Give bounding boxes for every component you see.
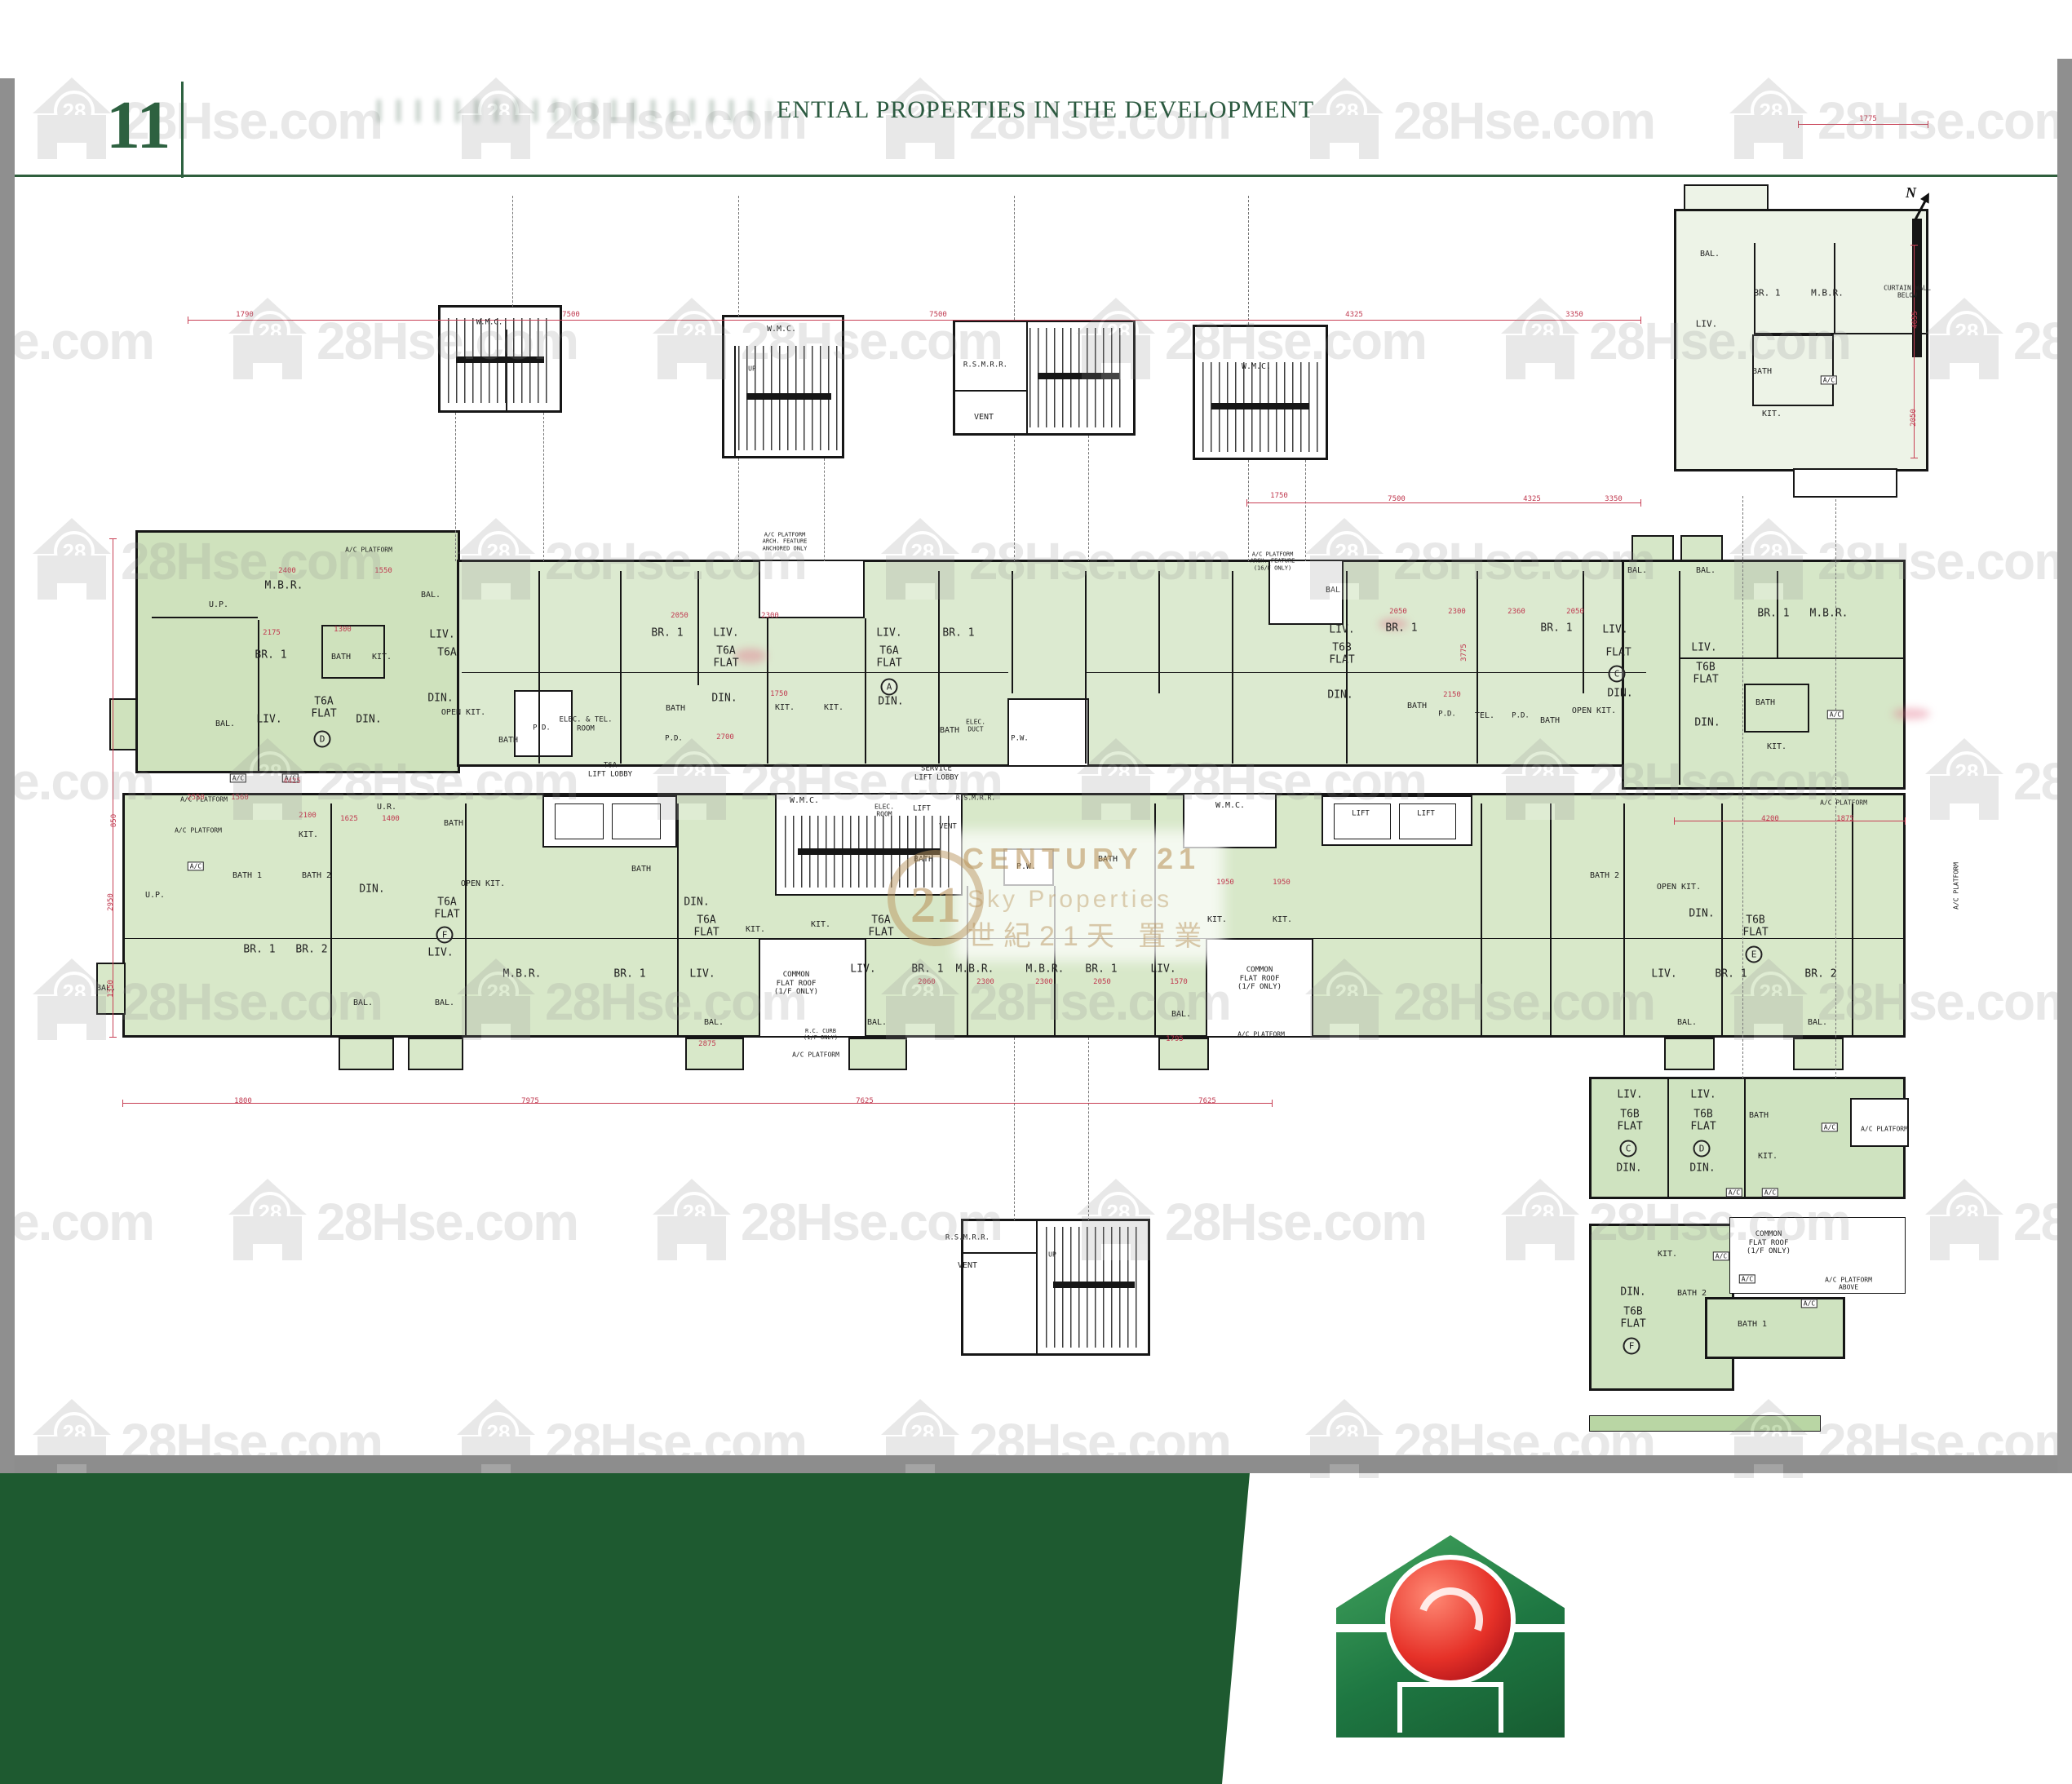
plan-label: A/C PLATFORM <box>175 826 222 834</box>
plan-label: BAL. <box>1808 1018 1827 1028</box>
dimension-label: 1300 <box>334 626 352 634</box>
dimension-label: 2550 <box>187 794 205 802</box>
dimension-label: 2950 <box>107 893 115 911</box>
plan-label: BR. 1 <box>1753 289 1780 299</box>
plan-label: BR. 2 <box>295 943 327 955</box>
plan-label: ELEC. & TEL. ROOM <box>559 715 612 733</box>
plan-label: R.C. CURB (1/F ONLY) <box>804 1028 838 1042</box>
dimension-label: 3775 <box>1460 644 1468 662</box>
dimension-label: 2050 <box>671 612 688 620</box>
plan-label: T6A LIFT LOBBY <box>588 761 632 778</box>
plan-label: BR. 1 <box>1540 622 1572 634</box>
plan-label: KIT. <box>1207 915 1227 925</box>
plan-label: C <box>1620 1140 1637 1158</box>
dimension-label: 2050 <box>1910 409 1918 427</box>
dimension-label: 2875 <box>698 1040 716 1048</box>
dimension-label: 2300 <box>1448 608 1466 616</box>
plan-label: DIN. <box>1327 688 1353 701</box>
plan-label: KIT. <box>1273 915 1292 925</box>
plan-label: A/C PLATFORM ARCH. FEATURE ANCHORED ONLY <box>763 532 808 552</box>
dimension-label: 1795 <box>1166 1035 1184 1043</box>
plan-label: BR. 1 <box>911 963 943 975</box>
plan-label: BAL. <box>867 1018 887 1028</box>
plan-label: LIV. <box>876 626 901 639</box>
plan-label: T6A FLAT <box>434 896 459 922</box>
page-number: 11 <box>106 91 170 160</box>
plan-label: BAL. <box>353 998 373 1008</box>
plan-label: M.B.R. <box>1026 963 1065 975</box>
plan-label: T6A FLAT <box>868 914 893 940</box>
plan-label: BR. 1 <box>1385 622 1417 634</box>
plan-label: A/C PLATFORM <box>1861 1125 1908 1132</box>
plan-label: DIN. <box>359 883 384 895</box>
dimension-label: 1570 <box>1170 978 1188 986</box>
plan-label: LIV. <box>713 626 738 639</box>
plan-label: P.D. <box>1512 712 1530 721</box>
page: { "page": { "number": "11", "title": "EN… <box>0 0 2072 1784</box>
plan-label: DIN. <box>1607 687 1632 699</box>
plan-label: T6B FLAT <box>1690 1109 1716 1134</box>
plan-label: W.M.C. <box>1215 801 1245 811</box>
plan-label: LIV. <box>1696 320 1718 330</box>
plan-label: BR. 1 <box>942 626 974 639</box>
plan-label: F <box>1623 1338 1640 1355</box>
plan-label: OPEN KIT. <box>1572 706 1616 716</box>
plan-label: W.M.C. <box>476 319 503 328</box>
dimension-label: 4325 <box>1345 311 1363 319</box>
dimension-label: 850 <box>110 814 118 827</box>
plan-label: BR. 1 <box>1757 607 1789 619</box>
dimension-label: 4200 <box>1761 815 1779 823</box>
plan-label: R.S.M.R.R. <box>963 361 1007 370</box>
plan-label: LIV. <box>850 963 875 975</box>
brand-logo <box>1336 1535 1565 1738</box>
plan-label: A/C <box>188 861 204 870</box>
plan-label: BATH <box>498 736 518 746</box>
plan-label: BATH 1 <box>232 871 262 881</box>
logo-red-ball-icon <box>1385 1555 1516 1685</box>
title-smudge <box>377 100 770 122</box>
header-rule <box>15 175 2057 177</box>
dimension-label: 7975 <box>521 1097 539 1105</box>
dimension-label: 1350 <box>107 980 115 998</box>
dimension-label: 2300 <box>1035 978 1053 986</box>
plan-label: COMMON FLAT ROOF (1/F ONLY) <box>1747 1230 1791 1256</box>
plan-label: BATH <box>1540 716 1560 726</box>
plan-label: KIT. <box>746 925 765 935</box>
plan-label: UP <box>748 365 756 372</box>
plan-label: KIT. <box>775 703 795 713</box>
plan-label: BATH 2 <box>1677 1289 1707 1299</box>
plan-label: SERVICE LIFT LOBBY <box>914 764 959 781</box>
dimension-label: 2360 <box>1508 608 1525 616</box>
plan-label: OPEN KIT. <box>441 708 485 718</box>
dimension-label: 1775 <box>1859 115 1877 123</box>
plan-label: TEL. <box>1475 711 1494 721</box>
plan-label: LIV. <box>1691 641 1716 653</box>
plan-label: LIFT <box>913 805 931 814</box>
north-label: N <box>1906 184 1916 201</box>
dimension-label: 2400 <box>278 567 296 575</box>
plan-label: BATH <box>331 653 351 662</box>
plan-label: DIN. <box>1616 1162 1641 1174</box>
plan-label: D <box>1693 1140 1711 1158</box>
plan-label: DIN. <box>878 695 903 707</box>
plan-label: BR. 2 <box>1804 967 1836 980</box>
plan-label: DIN. <box>1689 907 1714 919</box>
dimension-label: 7625 <box>1198 1097 1216 1105</box>
page-right-border <box>2057 59 2072 1473</box>
plan-label: BATH <box>1755 698 1775 708</box>
plan-label: W.M.C. <box>790 796 819 806</box>
plan-label: BATH <box>666 704 685 714</box>
plan-label: LIV. <box>427 946 453 958</box>
plan-label: BATH <box>914 855 933 865</box>
plan-label: T6A FLAT <box>311 696 336 721</box>
plan-label: LIV. <box>689 967 715 980</box>
dimension-label: 2300 <box>761 612 779 620</box>
dimension-label: 4425 <box>283 777 301 786</box>
plan-label: BAL. <box>435 998 454 1008</box>
plan-label: P.D. <box>533 724 551 733</box>
plan-label: DIN. <box>711 692 737 704</box>
plan-label: BATH <box>1752 367 1772 377</box>
logo-swirl-icon <box>1407 1577 1494 1663</box>
plan-label: LIV. <box>1690 1088 1716 1100</box>
plan-label: T6A <box>437 646 456 658</box>
dimension-label: 1750 <box>1270 492 1288 500</box>
plan-label: BR. 1 <box>1085 963 1117 975</box>
plan-label: A/C <box>1801 1299 1817 1308</box>
plan-label: ELEC. ROOM <box>874 803 894 819</box>
plan-label: P.W. <box>1016 862 1036 872</box>
dimension-label: 2050 <box>1389 608 1407 616</box>
dimension-label: 4655 <box>1911 311 1919 329</box>
plan-label: BR. 1 <box>1715 967 1747 980</box>
plan-label: OPEN KIT. <box>1657 883 1701 892</box>
plan-label: A/C <box>1739 1274 1755 1283</box>
plan-label: D <box>314 731 331 748</box>
plan-label: BAL. <box>421 591 441 600</box>
dimension-label: 1750 <box>770 690 788 698</box>
plan-label: R.S.M.R.R. <box>945 1234 990 1243</box>
dimension-label: 2050 <box>1566 608 1584 616</box>
dimension-label: 1400 <box>382 815 400 823</box>
plan-label: BATH 2 <box>302 871 331 881</box>
plan-label: T6A FLAT <box>876 645 901 671</box>
dimension-label: 2700 <box>716 733 734 741</box>
plan-label: BAL. <box>1696 566 1716 576</box>
plan-label: VENT <box>974 413 994 423</box>
plan-label: M.B.R. <box>1811 289 1844 299</box>
dimension-label: 3350 <box>1605 495 1623 503</box>
plan-label: KIT. <box>824 703 843 713</box>
plan-label: A/C <box>1821 375 1837 384</box>
plan-label: DIN. <box>1689 1162 1715 1174</box>
dimension-label: 1800 <box>234 1097 252 1105</box>
plan-label: F <box>436 927 454 944</box>
plan-label: U.P. <box>145 891 165 901</box>
plan-label: BAL. <box>1627 566 1647 576</box>
plan-label: A/C PLATFORM ARCH. FEATURE (16/F ONLY) <box>1251 551 1295 572</box>
plan-label: BAL. <box>1171 1010 1191 1020</box>
plan-label: R.S.M.R.R. <box>956 794 995 801</box>
plan-label: CURTAIN WALL BELOW <box>1884 285 1931 300</box>
plan-label: A/C PLATFORM <box>1952 862 1959 910</box>
plan-label: LIV. <box>1150 963 1175 975</box>
plan-label: C <box>1609 666 1626 683</box>
plan-label: LIV. <box>429 628 454 640</box>
plan-label: A/C <box>1726 1188 1742 1197</box>
plan-label: A/C <box>1762 1188 1778 1197</box>
plan-label: KIT. <box>1758 1152 1778 1162</box>
house-icon <box>1336 1535 1565 1738</box>
footer-gray-strip <box>0 1455 2072 1473</box>
dimension-label: 2175 <box>263 629 281 637</box>
plan-label: BR. 1 <box>613 967 645 980</box>
plan-label: T6B FLAT <box>1617 1109 1642 1134</box>
dimension-label: 7500 <box>562 311 580 319</box>
plan-label: A/C PLATFORM <box>1237 1030 1285 1038</box>
plan-label: P.W. <box>1011 735 1029 744</box>
plan-label: T6B FLAT <box>1742 914 1768 940</box>
plan-label: LIV. <box>1651 967 1676 980</box>
dimension-label: 1950 <box>1216 879 1234 887</box>
dimension-label: 7500 <box>929 311 947 319</box>
dimension-label: 7500 <box>1388 495 1406 503</box>
plan-label: BATH 2 <box>1590 871 1619 881</box>
plan-label: M.B.R. <box>1810 607 1848 619</box>
plan-label: P.D. <box>665 735 683 744</box>
dimension-label: 3350 <box>1565 311 1583 319</box>
plan-label: COMMON FLAT ROOF (1/F ONLY) <box>1237 966 1282 992</box>
plan-label: OPEN KIT. <box>461 879 505 889</box>
plan-label: FLAT <box>1605 646 1631 658</box>
plan-label: BAL. <box>1326 586 1345 595</box>
dimension-label: 1950 <box>1273 879 1291 887</box>
dimension-label: 2100 <box>299 812 317 820</box>
plan-label: M.B.R. <box>956 963 994 975</box>
plan-label: KIT. <box>1767 742 1786 752</box>
plan-label: DIN. <box>427 692 453 704</box>
plan-label: T6B FLAT <box>1329 642 1354 667</box>
plan-label: VENT <box>958 1261 977 1271</box>
plan-label: A/C PLATFORM ABOVE <box>1825 1277 1872 1292</box>
plan-label: LIV. <box>1617 1088 1642 1100</box>
plan-label: A/C <box>1713 1251 1729 1260</box>
plan-label: BR. 1 <box>255 649 286 661</box>
dimension-label: 2150 <box>1443 691 1461 699</box>
plan-label: VENT <box>939 823 957 832</box>
plan-label: T6B FLAT <box>1620 1306 1645 1331</box>
plan-label: A/C <box>1827 710 1844 719</box>
dimension-label: 1550 <box>374 567 392 575</box>
dimension-label: 1560 <box>231 794 249 802</box>
north-arrow: N <box>1907 191 1940 227</box>
plan-label: KIT. <box>1658 1250 1677 1259</box>
dimension-label: 4325 <box>1523 495 1541 503</box>
plan-label: DIN. <box>1694 716 1720 728</box>
plan-label: LIV. <box>1329 623 1354 635</box>
plan-label: M.B.R. <box>503 967 542 980</box>
plan-label: BAL. <box>704 1018 724 1028</box>
plan-label: T6A FLAT <box>713 645 738 671</box>
plan-label: A/C PLATFORM <box>1820 799 1867 806</box>
plan-label: W.M.C. <box>767 325 796 334</box>
plan-label: DIN. <box>684 896 709 908</box>
plan-label: M.B.R. <box>265 579 303 591</box>
plan-label: LIFT <box>1352 810 1370 819</box>
plan-label: KIT. <box>299 830 318 840</box>
plan-label: E <box>1746 946 1763 963</box>
plan-label: KIT. <box>372 653 392 662</box>
plan-label: DIN. <box>1620 1286 1645 1298</box>
plan-label: W.M.C. <box>1242 362 1271 372</box>
dimension-label: 1875 <box>1836 815 1854 823</box>
plan-label: T6A FLAT <box>693 914 719 940</box>
plan-label: BATH <box>1098 855 1118 865</box>
plan-label: A/C PLATFORM <box>792 1051 839 1058</box>
plan-label: BATH 1 <box>1738 1320 1767 1330</box>
plan-label: U.R. <box>377 803 396 812</box>
plan-label: BAL. <box>1677 1018 1697 1028</box>
plan-label: ELEC. DUCT <box>966 719 985 734</box>
dimension-label: 2060 <box>918 978 936 986</box>
plan-label: BATH <box>1749 1111 1769 1121</box>
plan-label: BR. 1 <box>243 943 275 955</box>
dimension-label: 2300 <box>976 978 994 986</box>
plan-label: LIV. <box>1602 623 1627 635</box>
plan-label: DIN. <box>356 713 381 725</box>
plan-label: BAL. <box>1700 250 1720 259</box>
plan-label: LIFT <box>1417 810 1435 819</box>
plan-label: A/C <box>1822 1122 1838 1131</box>
plan-label: A/C PLATFORM <box>345 546 392 553</box>
plan-label: BATH <box>1407 702 1427 711</box>
footer-green-band <box>0 1473 1256 1784</box>
plan-label: COMMON FLAT ROOF (1/F ONLY) <box>774 971 818 997</box>
plan-label: BATH <box>940 726 959 736</box>
dimension-label: 1625 <box>340 815 358 823</box>
plan-label: A <box>881 679 898 696</box>
plan-label: BATH <box>631 865 651 874</box>
dimension-label: 7625 <box>856 1097 874 1105</box>
page-left-border <box>0 78 15 1473</box>
plan-label: U.P. <box>209 600 228 610</box>
plan-label: T6B FLAT <box>1693 662 1718 687</box>
header-divider <box>181 82 184 178</box>
dimension-label: 2050 <box>1093 978 1111 986</box>
plan-label: BAL. <box>215 719 235 729</box>
dimension-label: 1790 <box>236 311 254 319</box>
plan-label: KIT. <box>1762 409 1782 419</box>
house-door-icon <box>1397 1682 1503 1733</box>
plan-label: P.D. <box>1438 711 1456 719</box>
plan-label: BATH <box>444 819 463 829</box>
page-title: ENTIAL PROPERTIES IN THE DEVELOPMENT <box>777 96 1314 124</box>
plan-label: KIT. <box>811 920 830 930</box>
plan-label: BR. 1 <box>651 626 683 639</box>
plan-label: A/C <box>230 773 246 782</box>
plan-label: LIV. <box>256 713 281 725</box>
plan-label: UP <box>1048 1251 1056 1258</box>
